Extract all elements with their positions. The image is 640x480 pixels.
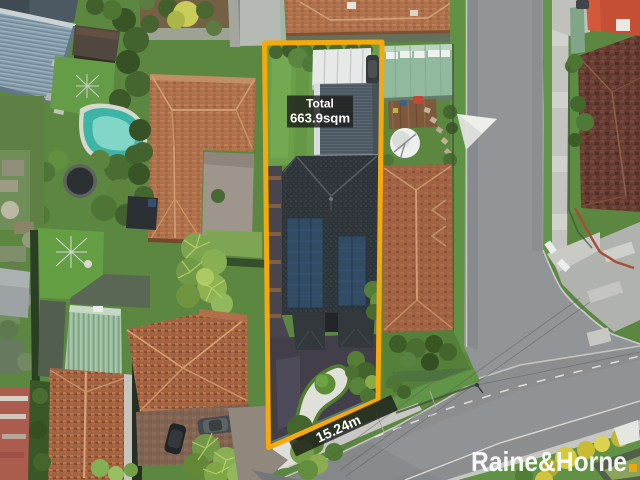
svg-text:Raine&Horne: Raine&Horne — [471, 446, 627, 477]
svg-text:Total: Total — [306, 97, 334, 111]
svg-text:663.9sqm: 663.9sqm — [290, 111, 350, 126]
